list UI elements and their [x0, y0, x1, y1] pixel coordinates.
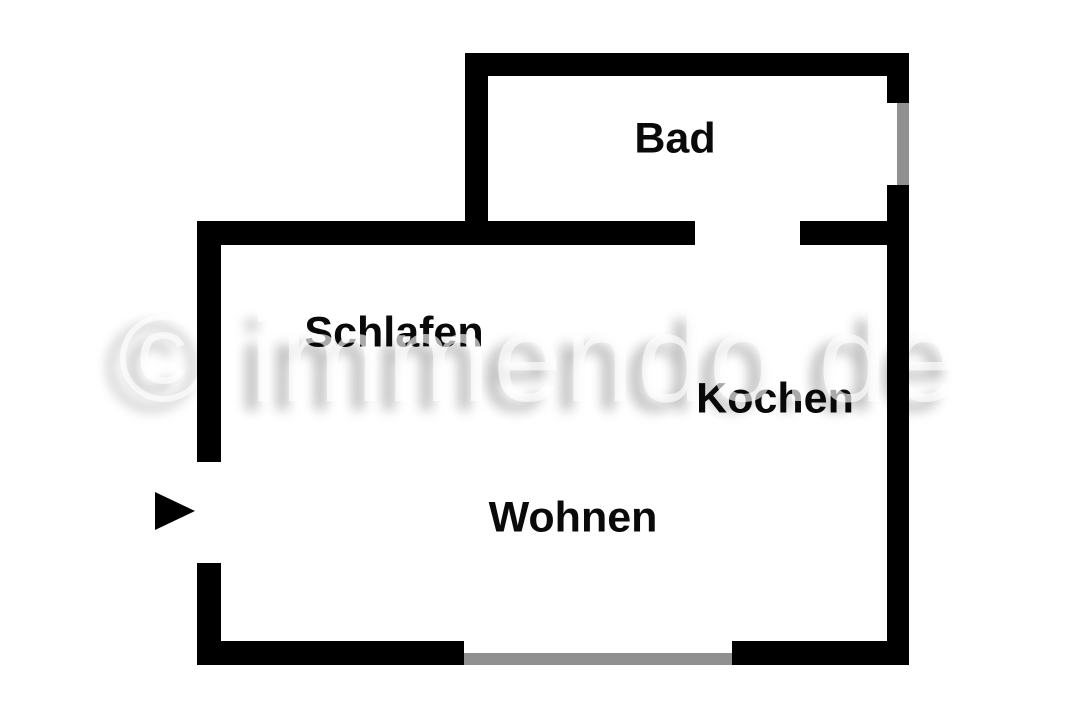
- wall-right-above-window: [887, 76, 909, 103]
- floorplan-canvas: © immendo.de Bad Schlafen Kochen Wohnen: [0, 0, 1080, 720]
- wall-middle-left-segment: [197, 221, 695, 245]
- room-label-bad: Bad: [634, 115, 715, 164]
- wall-bottom-left-segment: [197, 641, 464, 665]
- room-label-wohnen: Wohnen: [489, 494, 658, 543]
- wall-bottom-right-segment: [732, 641, 888, 665]
- room-label-kochen: Kochen: [696, 375, 854, 424]
- entrance-arrow-icon: [155, 492, 195, 530]
- window-living-room: [464, 653, 732, 665]
- wall-middle-right-segment: [800, 221, 909, 245]
- wall-left-above-entrance: [197, 221, 221, 462]
- wall-bathroom-left: [465, 53, 488, 245]
- wall-bathroom-top: [465, 53, 909, 76]
- wall-right-main: [887, 185, 909, 665]
- window-bathroom: [897, 103, 909, 185]
- room-label-schlafen: Schlafen: [304, 309, 483, 358]
